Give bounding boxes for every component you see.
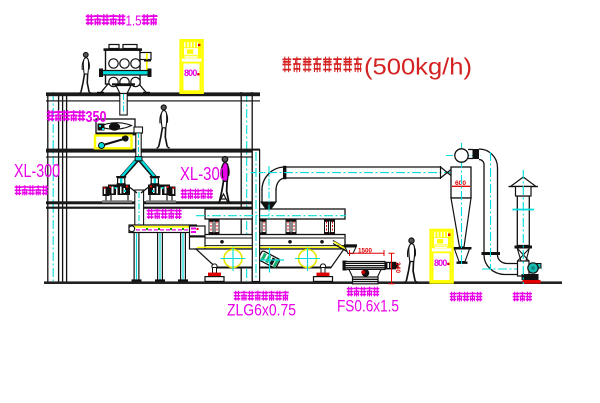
svg-text:350: 350 — [86, 109, 107, 126]
svg-text:600: 600 — [455, 181, 467, 187]
svg-text:XL-300: XL-300 — [14, 161, 60, 181]
svg-text:FS0.6x1.5: FS0.6x1.5 — [337, 298, 399, 316]
svg-text:XL-300: XL-300 — [180, 164, 228, 184]
svg-text:1500: 1500 — [358, 248, 373, 254]
svg-text:340: 340 — [394, 262, 400, 274]
svg-text:ZLG6x0.75: ZLG6x0.75 — [227, 302, 296, 320]
svg-text:(500kg/h): (500kg/h) — [364, 54, 472, 80]
svg-text:1.5: 1.5 — [126, 13, 142, 30]
